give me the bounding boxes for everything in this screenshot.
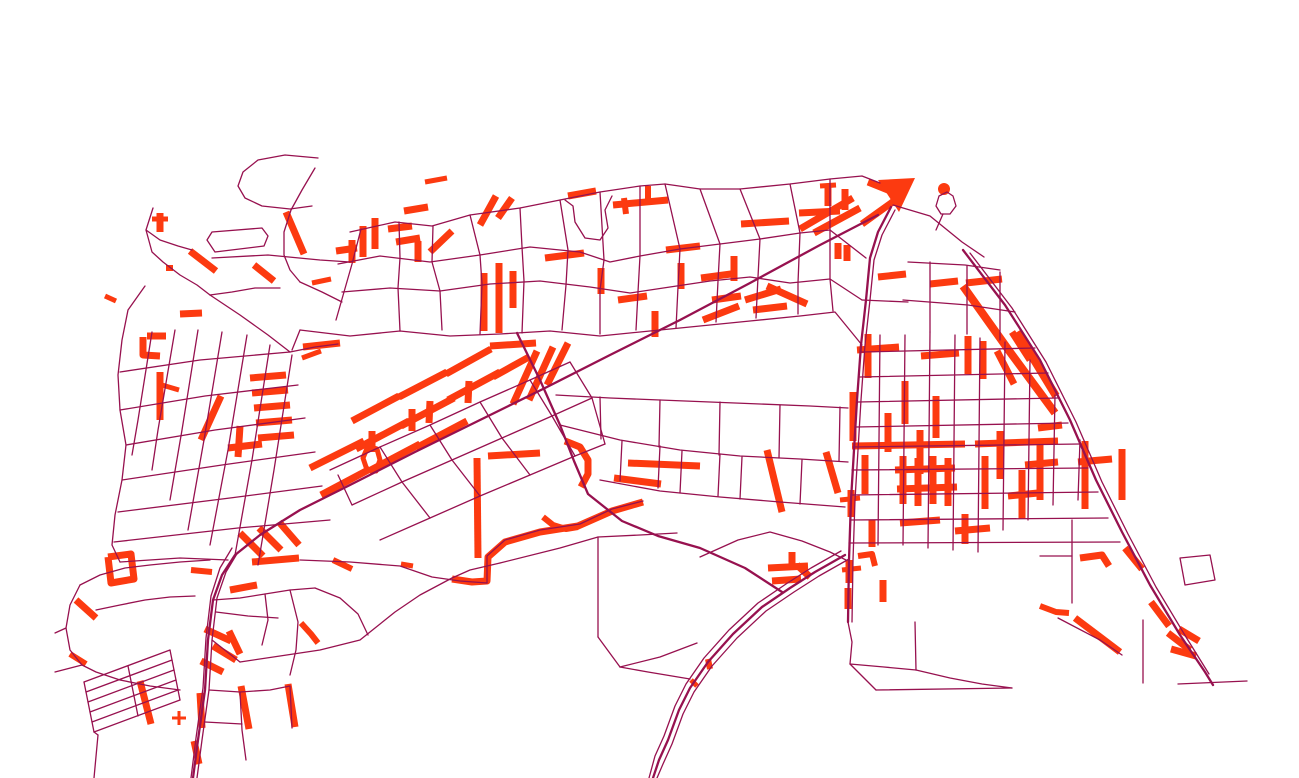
map-line [955,528,990,531]
map-line [975,441,1058,444]
map-line [94,732,98,735]
map-line [649,551,841,778]
map-line [240,578,452,662]
map-line [210,288,280,295]
map-line [210,295,290,352]
map-line [1078,440,1080,500]
map-line [560,425,848,462]
map-line [826,452,838,493]
map-line [212,255,350,262]
map-line [700,532,846,560]
map-line [105,296,116,301]
map-line [624,198,626,214]
map-line [936,192,956,214]
highlighted-segments-layer [70,178,1199,764]
map-line [657,559,849,778]
map-line [1078,459,1112,462]
map-line [653,555,845,778]
map-line [292,330,300,350]
map-line [659,400,660,447]
map-line [916,670,1012,688]
map-line [598,637,620,667]
map-line [55,665,82,672]
map-line [850,664,916,670]
map-line [205,722,242,724]
map-line [741,221,789,224]
map-line [620,667,690,679]
map-line [470,215,482,334]
map-line [857,347,899,350]
map-line [230,585,257,590]
map-line [878,335,880,545]
map-line [201,396,221,440]
map-line [300,282,342,302]
map-line [279,522,299,545]
map-line [55,628,66,633]
map-line [1180,555,1215,585]
map-line [897,487,957,489]
map-line [636,186,640,330]
map-line [614,478,661,484]
map-line [94,735,98,778]
map-line [143,337,160,356]
map-line [336,248,357,251]
map-line [238,426,240,457]
map-line [300,312,862,345]
map-line [122,452,315,480]
map-line [229,631,240,654]
map-line [399,372,447,397]
map-line [545,253,584,258]
map-line [719,402,720,455]
map-line [718,454,720,496]
map-line [388,226,412,229]
map-line [213,646,236,660]
map-line [628,463,700,466]
map-line [250,375,286,378]
map-line [152,330,175,470]
map-line [302,351,321,358]
map-line [772,579,801,581]
map-line [80,560,210,585]
map-line [842,568,861,570]
map-line [779,405,780,458]
map-line [753,306,787,310]
map-line [565,196,612,240]
map-line [209,686,290,692]
map-line [858,554,875,566]
map-line [560,200,568,330]
map-line [290,590,298,675]
map-line [878,274,906,277]
map-line [820,185,836,186]
map-line [908,262,1000,270]
map-line [915,622,916,670]
map-line [930,281,958,284]
map-line [745,289,781,300]
map-line [858,398,1058,402]
map-viewport [0,0,1299,778]
map-line [618,296,647,300]
map-line [665,184,680,328]
map-line [312,279,331,283]
map-line [258,435,294,438]
map-line [900,520,940,523]
map-line [228,444,262,448]
map-line [852,468,1088,470]
map-line [190,251,216,271]
map-line [262,594,268,645]
map-line [620,643,697,667]
map-line [96,596,195,610]
map-line [862,300,908,302]
map-line [315,588,368,635]
map-line [893,205,984,257]
street-network-map [0,0,1299,778]
map-line [146,230,192,250]
map-line [850,518,1108,520]
map-line [800,460,802,504]
map-line [903,300,1015,312]
map-line [839,407,840,461]
map-line [429,401,430,423]
map-line [876,688,1012,690]
map-line [216,612,278,618]
map-line [701,274,731,278]
map-line [620,441,622,481]
map-line [213,588,315,600]
map-line [76,600,96,618]
map-line [120,558,228,562]
map-line [452,563,500,578]
map-line [966,279,1002,283]
map-line [700,189,720,322]
map-line [301,623,318,643]
map-line [851,492,1098,495]
map-line [921,353,959,356]
map-line [498,198,512,218]
map-line [600,397,601,439]
map-line [468,381,469,403]
map-line [352,396,399,421]
map-line [850,664,876,690]
map-line [703,306,739,320]
map-line [848,622,852,664]
map-line [310,441,364,468]
map-line [480,196,496,225]
map-line [425,178,447,182]
map-line [404,207,428,211]
map-line [490,343,536,346]
map-line [480,402,530,475]
map-line [446,349,491,374]
map-line [600,192,604,334]
map-line [799,211,840,213]
map-line [680,451,682,493]
map-line [477,458,478,558]
map-line [448,372,500,400]
map-line [849,542,1120,543]
map-line [191,570,212,572]
map-line [180,313,202,314]
map-line [1075,618,1120,652]
map-line [520,208,524,333]
map-line [1080,555,1109,566]
map-line [767,450,782,512]
map-line [170,330,198,500]
map-line [254,265,274,281]
map-line [1038,425,1062,428]
map-line [903,335,905,545]
map-line [207,228,268,252]
map-line [112,286,145,562]
map-line [928,332,930,548]
map-line [401,564,413,566]
map-line [1040,606,1069,613]
map-line [740,457,742,499]
